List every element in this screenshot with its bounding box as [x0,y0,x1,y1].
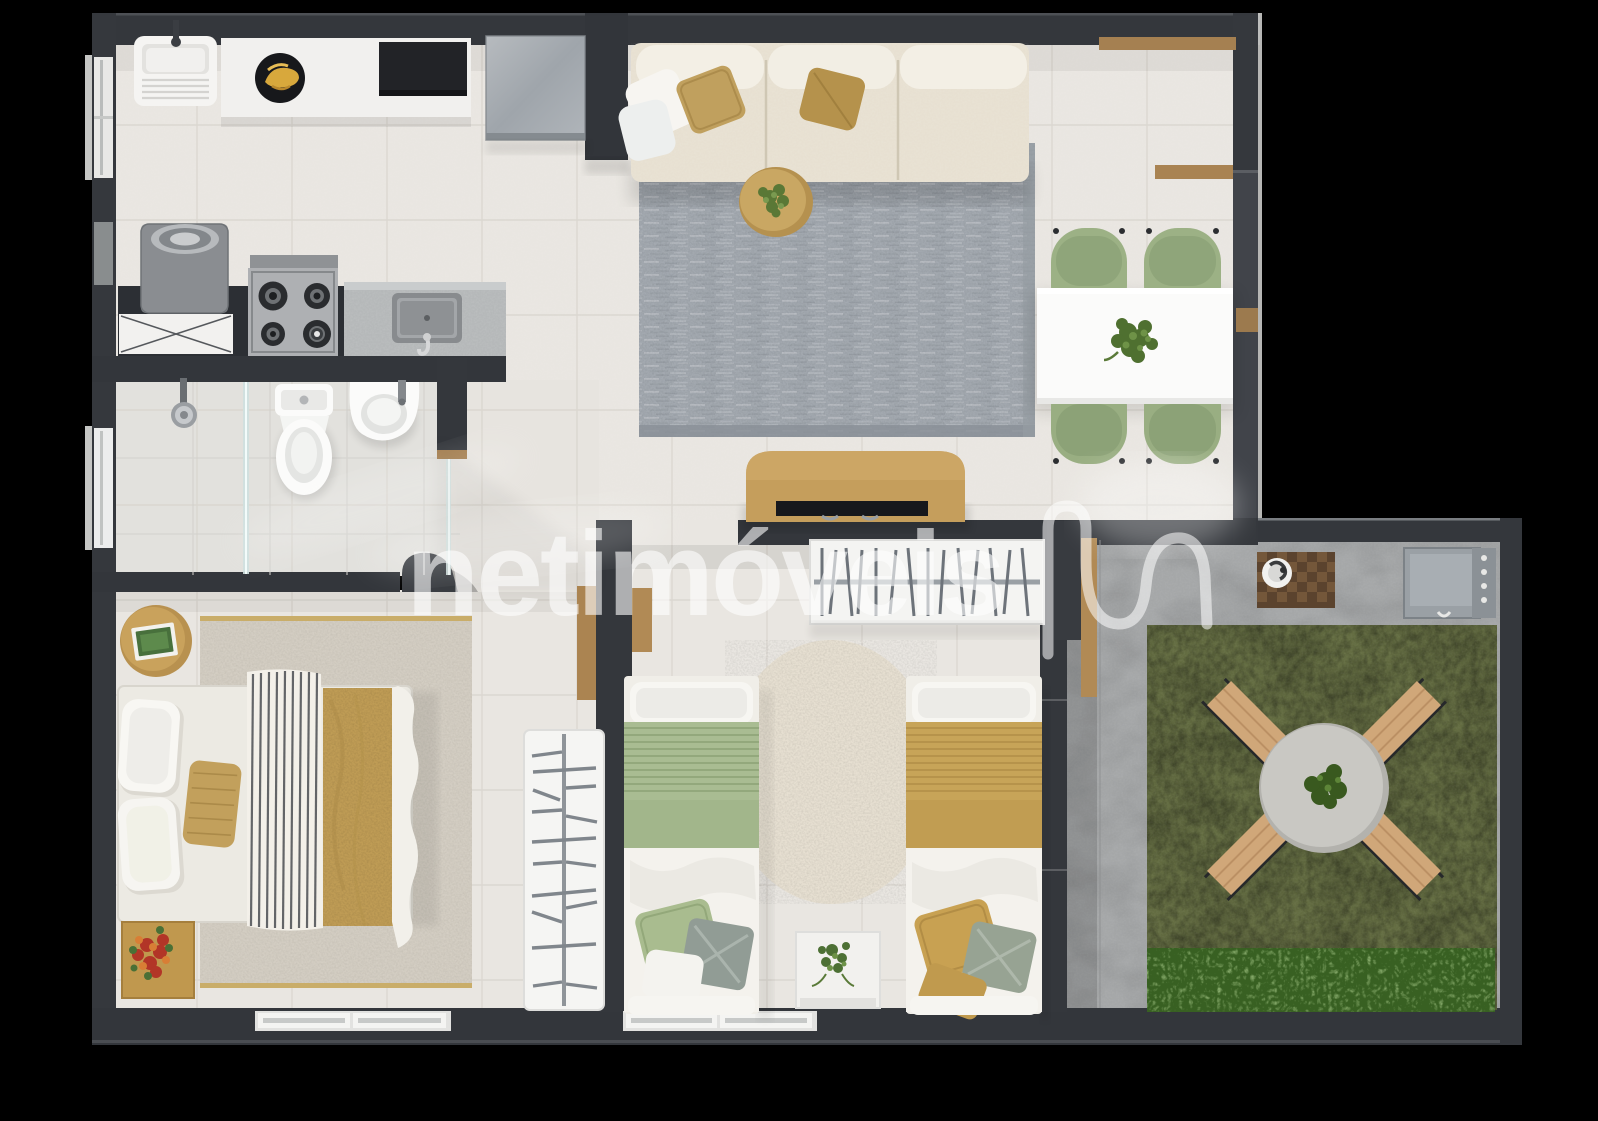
svg-text:netimóveis: netimóveis [406,507,1003,641]
